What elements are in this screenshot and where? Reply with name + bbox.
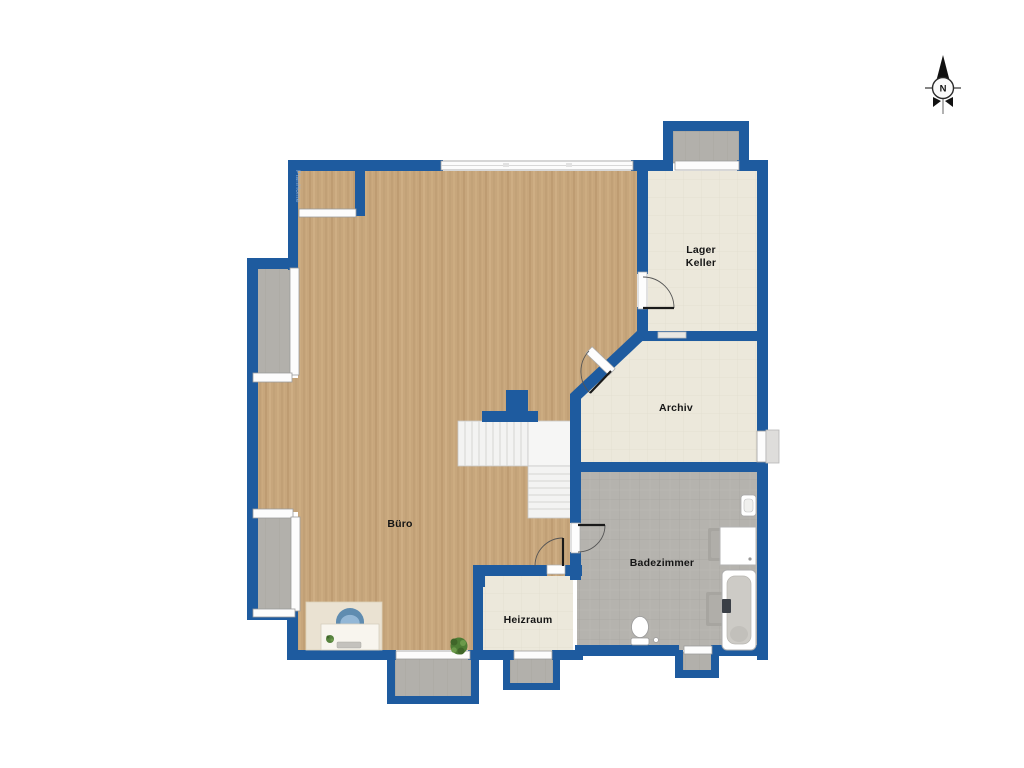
window-left-lower-v [291,517,300,611]
window-sill-archiv [766,430,779,463]
window-left-upper-v [290,268,299,375]
floor-plant [451,638,468,655]
compass-north-icon: N [925,55,961,114]
shower [720,527,756,565]
window-badezimmer [684,646,712,654]
lightwell-bottom-heizraum [510,658,553,686]
lightwell-bottom-bad [683,652,713,672]
window-left-lower-h [253,509,293,518]
window-niche [299,209,356,217]
floor-plan-page: Büro Lager Keller Archiv Badezimmer Heiz… [0,0,1024,768]
window-lager-top [675,161,739,170]
label-badezimmer: Badezimmer [630,557,694,569]
bath-mat-tub-inner [709,595,723,623]
window-internal-lager [658,332,686,338]
label-heizraum: Heizraum [504,614,553,626]
lightwell-left-lower [252,517,293,611]
floor-plan: Büro Lager Keller Archiv Badezimmer Heiz… [0,0,1024,768]
stair-landing [528,421,572,466]
label-buero: Büro [387,518,412,530]
window-heizraum [514,651,552,659]
lightwell-top [673,131,739,163]
bathtub-tap [722,599,731,613]
label-keller: Keller [686,257,716,269]
toilet-brush [654,638,659,643]
window-archiv-right [757,431,766,462]
label-archiv: Archiv [659,402,693,414]
label-lager: Lager [686,244,716,256]
window-left-bottom [253,609,295,617]
compass-north-label: N [940,84,947,95]
bathtub [722,570,756,650]
desk [321,624,379,650]
office-furniture [306,602,382,650]
watermark: PlanHome [294,170,301,203]
lightwell-bottom-buero [395,658,471,698]
window-left-upper-h [253,373,292,382]
keyboard [337,642,361,648]
sink [741,495,756,516]
